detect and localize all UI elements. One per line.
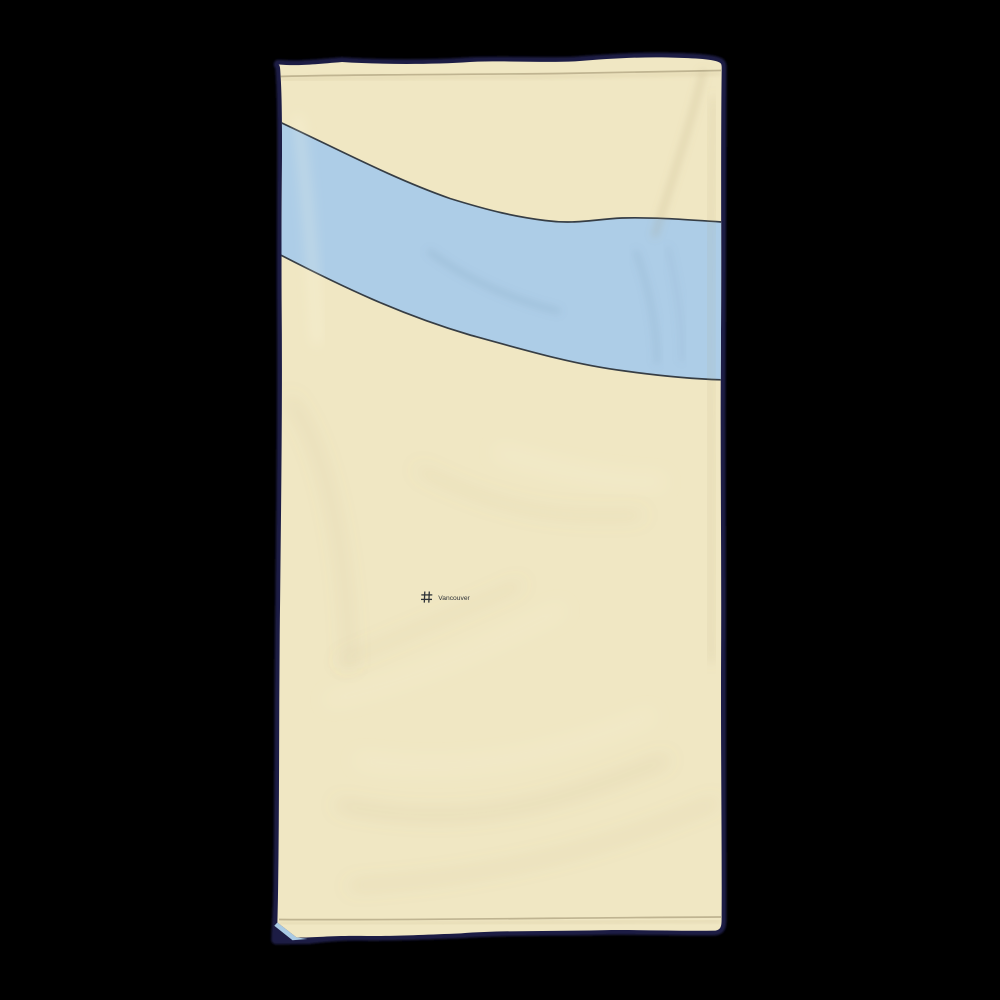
svg-text:Vancouver: Vancouver	[438, 595, 470, 602]
